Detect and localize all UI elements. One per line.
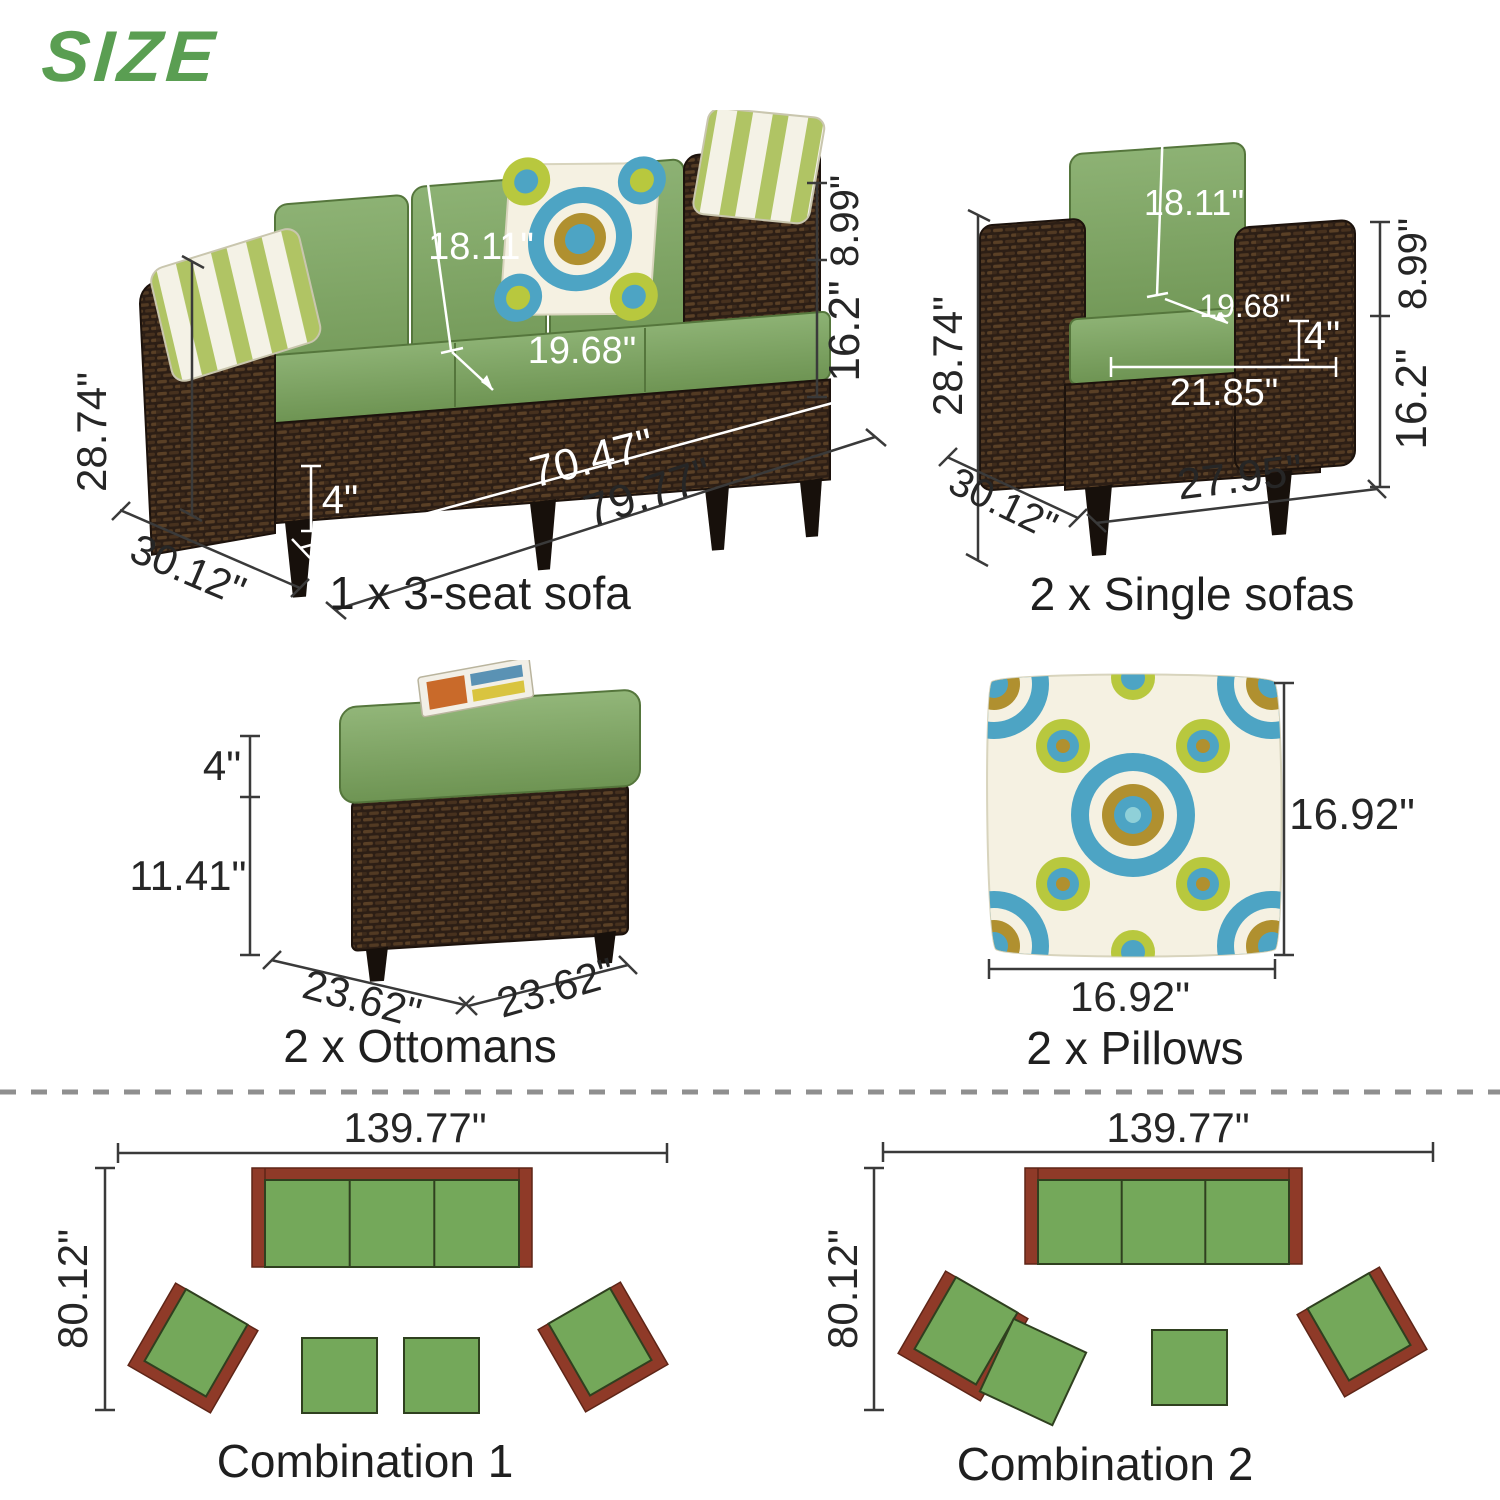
sofa-body [140,110,830,610]
sofa-back-cushion-label: 18.11" [428,228,534,266]
chair-cushion-label: 4" [1304,316,1340,356]
plan-sofa [1025,1168,1302,1264]
chair-inner-width-label: 21.85" [1170,374,1279,412]
chair-seat-height-label: 16.2" [1390,348,1434,449]
sofa-height-label: 28.74" [71,372,113,492]
sofa-arm-drop-label: 8.99" [825,175,865,267]
plan-ottoman [1152,1330,1227,1405]
sofa-caption: 1 x 3-seat sofa [329,566,631,620]
striped-pillow [692,110,827,224]
ottoman-base-height-label: 11.41" [130,855,247,897]
chair-back-cushion-label: 18.11" [1144,185,1244,221]
ottoman-cushion-label: 4" [203,745,241,787]
section-divider [0,1086,1500,1098]
chair-height-label: 28.74" [927,296,969,416]
ottoman-illustration [170,660,690,1080]
plan-ottoman [302,1338,377,1413]
sofa-cushion-label: 4" [322,480,358,520]
plan-chair-left [128,1283,258,1413]
pillow-caption: 2 x Pillows [1026,1021,1243,1075]
chair-arm-drop-label: 8.99" [1393,218,1433,310]
combination2-width-label: 139.77" [1106,1107,1249,1149]
pillow-width-label: 16.92" [1070,976,1190,1018]
combination2-depth-label: 80.12" [822,1229,864,1349]
pillow-body [950,650,1327,995]
plan-chair-right [538,1282,668,1412]
plan-ottoman [404,1338,479,1413]
sofa-seat-depth-label: 19.68" [528,332,637,370]
ottoman-body [340,660,640,984]
sofa-leg [530,499,556,571]
combination1-depth-label: 80.12" [52,1229,94,1349]
chair-seat-depth-label: 19.68" [1199,290,1290,322]
page-title: SIZE [39,16,221,98]
plan-sofa [252,1168,532,1267]
chair-caption: 2 x Single sofas [1030,567,1355,621]
ottoman-caption: 2 x Ottomans [283,1019,557,1073]
combination2-caption: Combination 2 [957,1437,1254,1491]
combination1-width-label: 139.77" [343,1107,486,1149]
sofa-leg [800,478,822,538]
pillow-height-label: 16.92" [1289,793,1415,837]
ottoman-wicker-base [352,784,628,951]
plan-chair-right [1297,1267,1427,1397]
combination1-caption: Combination 1 [217,1434,514,1488]
ottoman-cushion [340,689,640,803]
size-diagram-page: SIZE [0,0,1500,1500]
sofa-seat-height-label: 16.2" [823,280,867,381]
